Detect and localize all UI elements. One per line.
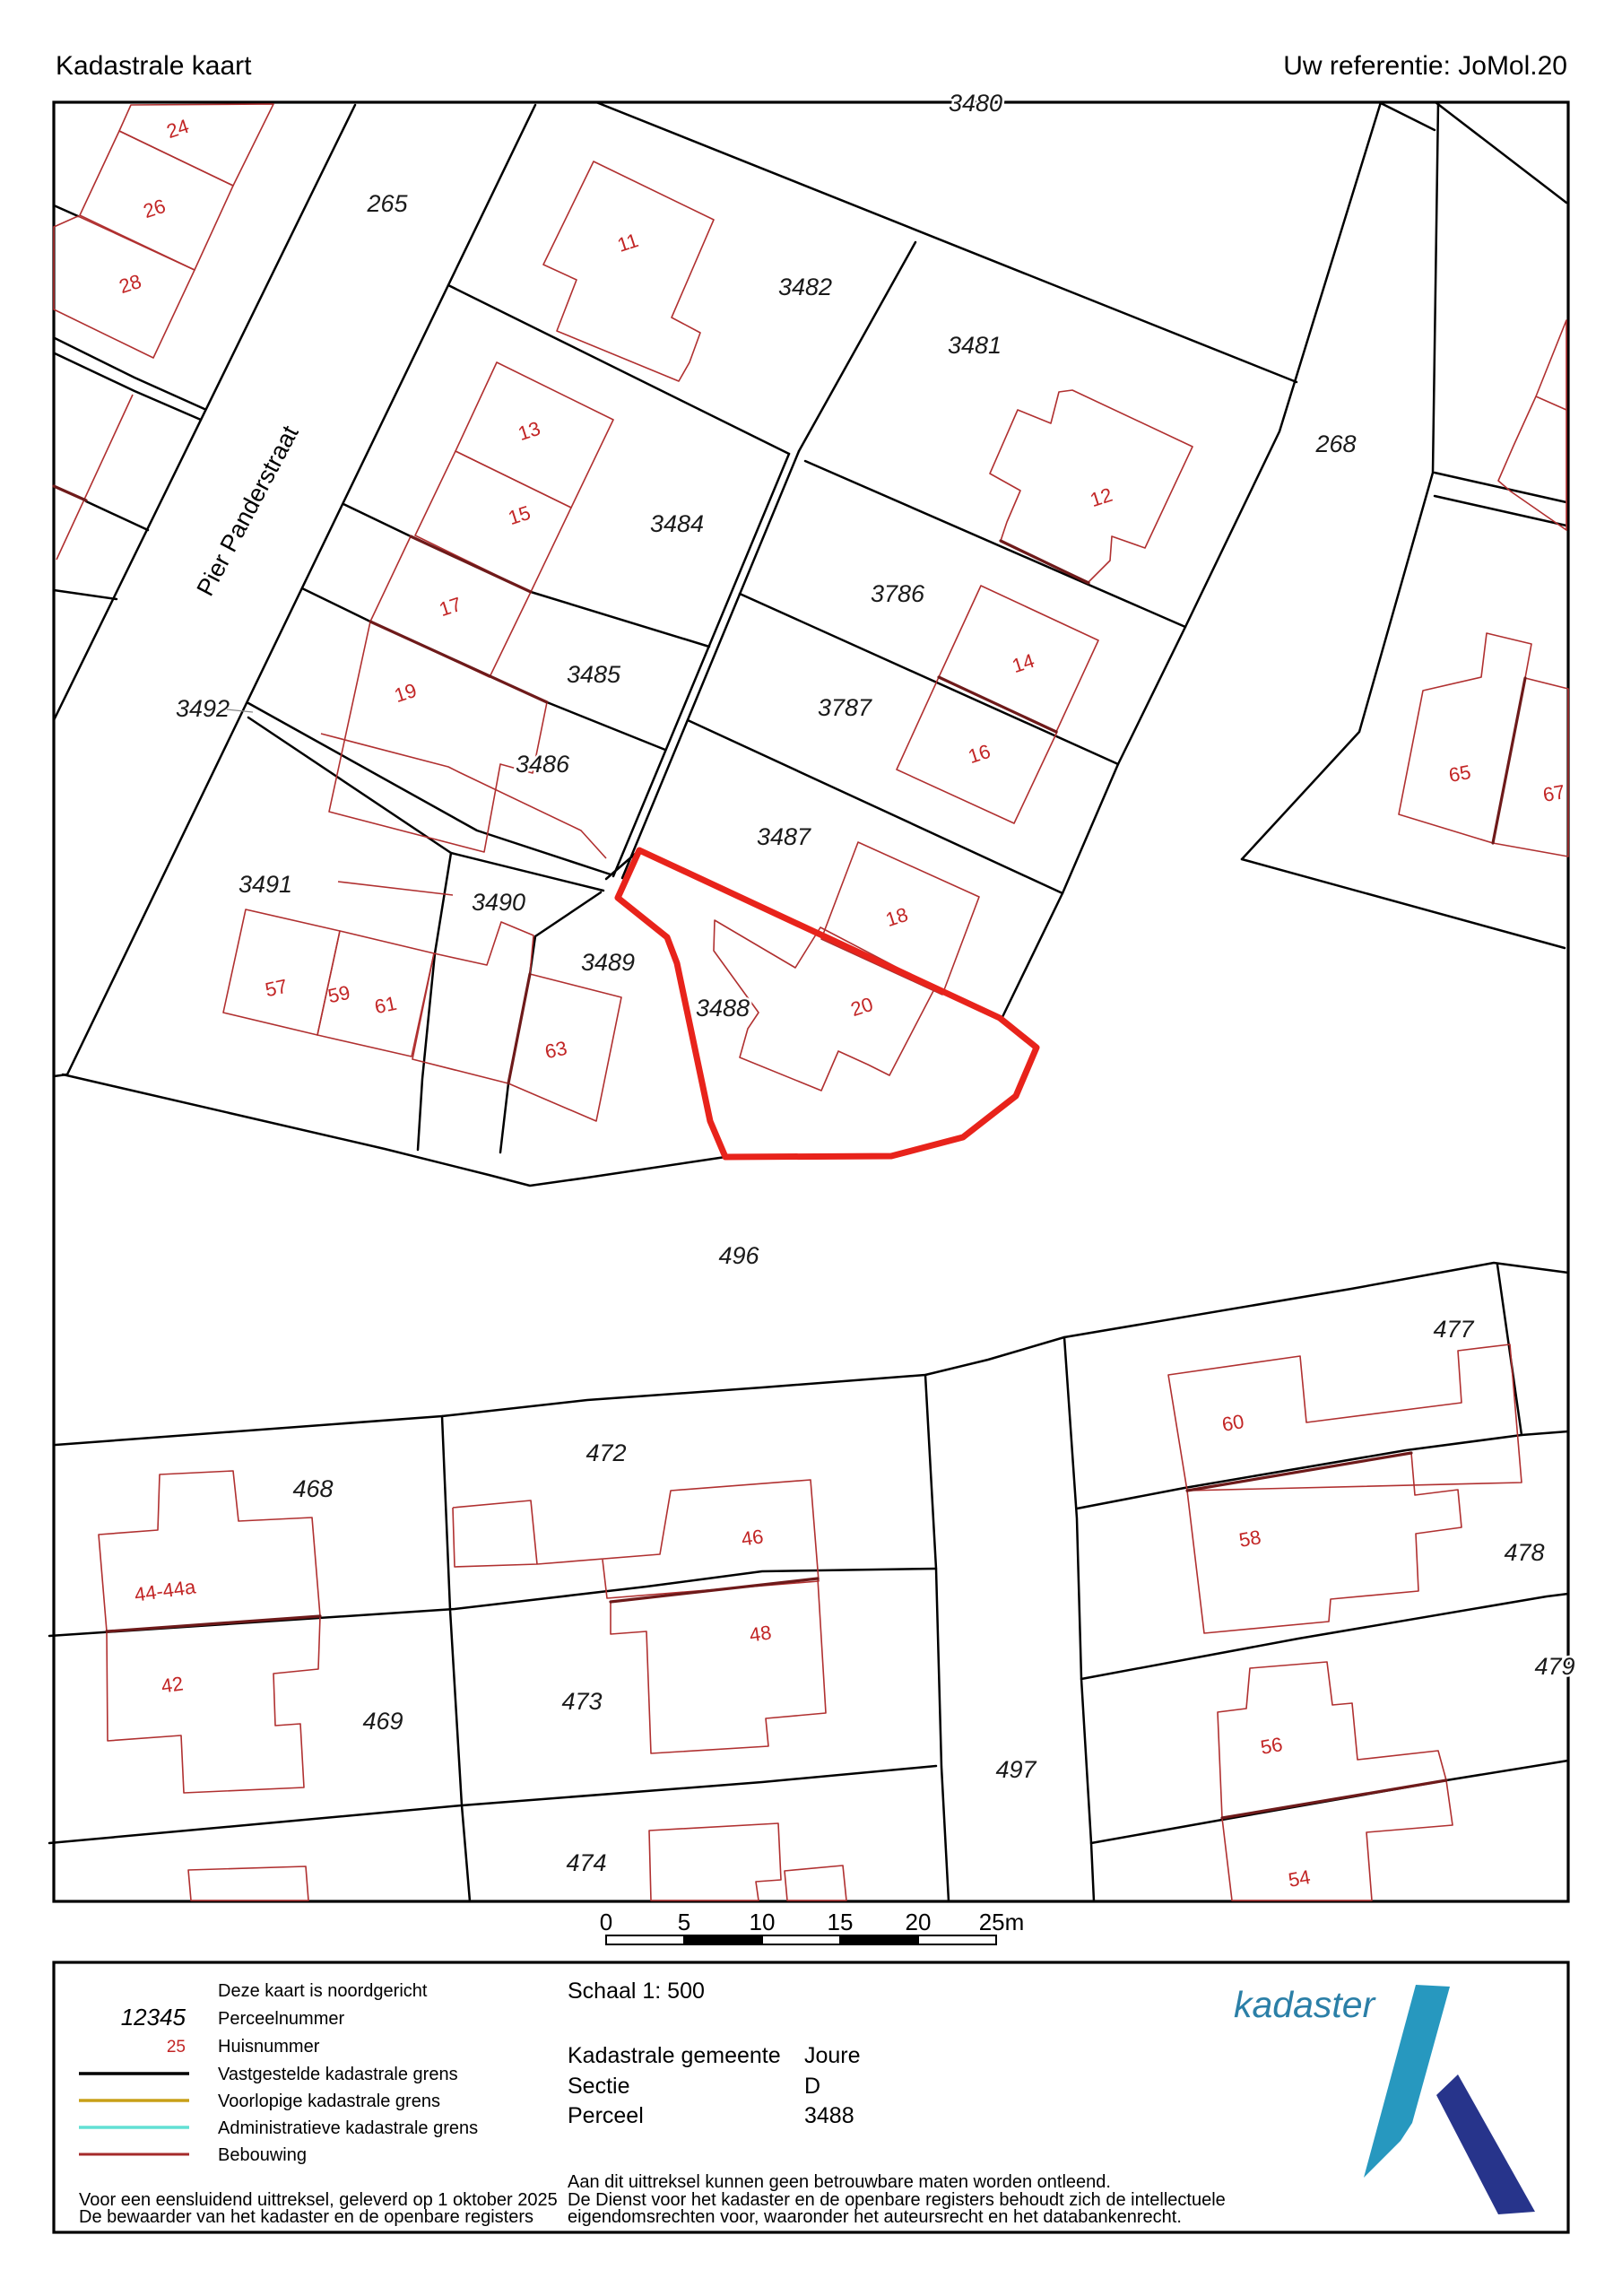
svg-text:Bebouwing: Bebouwing [218,2145,307,2165]
svg-text:472: 472 [585,1439,626,1466]
svg-text:474: 474 [566,1849,606,1876]
svg-text:54: 54 [1287,1865,1312,1892]
svg-text:473: 473 [561,1688,602,1715]
svg-text:3485: 3485 [567,661,621,688]
svg-text:20: 20 [906,1909,932,1935]
svg-text:3480: 3480 [949,90,1002,117]
svg-text:Perceelnummer: Perceelnummer [218,2009,345,2029]
svg-text:3489: 3489 [581,949,635,976]
svg-text:3488: 3488 [696,995,750,1022]
svg-text:kadaster: kadaster [1234,1984,1377,2025]
svg-text:10: 10 [750,1909,776,1935]
svg-text:3481: 3481 [948,332,1002,359]
svg-text:Deze kaart is noordgericht: Deze kaart is noordgericht [218,1981,428,2001]
svg-text:468: 468 [292,1475,333,1502]
svg-text:3786: 3786 [871,580,925,607]
svg-text:56: 56 [1259,1733,1284,1759]
svg-text:478: 478 [1504,1539,1544,1566]
svg-text:25m: 25m [979,1909,1025,1935]
svg-text:60: 60 [1220,1410,1245,1436]
svg-text:Sectie: Sectie [568,2074,629,2099]
svg-text:48: 48 [748,1621,773,1646]
svg-text:3492: 3492 [176,695,230,722]
svg-text:Joure: Joure [804,2043,861,2068]
svg-text:67: 67 [1541,780,1566,806]
svg-text:25: 25 [167,2038,186,2057]
svg-text:479: 479 [1534,1653,1574,1680]
svg-text:Uw referentie: JoMol.20: Uw referentie: JoMol.20 [1283,51,1567,81]
svg-text:D: D [804,2074,820,2099]
svg-text:De bewaarder van het kadaster: De bewaarder van het kadaster en de open… [79,2207,533,2227]
svg-text:15: 15 [828,1909,854,1935]
svg-text:3490: 3490 [472,889,525,916]
svg-text:Administratieve kadastrale gre: Administratieve kadastrale grens [218,2118,478,2138]
svg-text:59: 59 [326,981,352,1008]
svg-text:Kadastrale kaart: Kadastrale kaart [56,51,252,81]
svg-text:65: 65 [1447,761,1472,787]
svg-text:61: 61 [373,992,399,1019]
svg-text:Kadastrale gemeente: Kadastrale gemeente [568,2043,781,2068]
svg-text:12345: 12345 [121,2004,186,2031]
svg-text:57: 57 [264,975,290,1002]
svg-text:496: 496 [718,1242,759,1269]
svg-text:497: 497 [995,1756,1037,1783]
svg-text:265: 265 [366,190,408,217]
svg-text:3486: 3486 [516,751,570,778]
svg-text:3491: 3491 [239,871,292,898]
svg-text:3787: 3787 [818,694,872,721]
svg-text:0: 0 [600,1909,612,1935]
svg-text:3482: 3482 [778,274,832,300]
svg-text:5: 5 [678,1909,690,1935]
svg-text:Vastgestelde kadastrale grens: Vastgestelde kadastrale grens [218,2065,458,2084]
svg-text:268: 268 [1314,430,1356,457]
svg-text:469: 469 [362,1708,403,1735]
svg-text:3488: 3488 [804,2103,854,2128]
svg-text:Aan dit uittreksel kunnen geen: Aan dit uittreksel kunnen geen betrouwba… [568,2172,1111,2192]
svg-text:Voorlopige kadastrale grens: Voorlopige kadastrale grens [218,2092,440,2111]
svg-text:63: 63 [543,1037,569,1064]
svg-text:Schaal 1: 500: Schaal 1: 500 [568,1979,705,2004]
svg-text:477: 477 [1433,1316,1474,1343]
svg-text:eigendomsrechten voor, waarond: eigendomsrechten voor, waaronder het aut… [568,2207,1182,2227]
svg-text:3487: 3487 [757,823,811,850]
svg-text:42: 42 [160,1672,185,1697]
svg-text:46: 46 [740,1525,765,1550]
svg-text:58: 58 [1237,1526,1262,1552]
svg-text:3484: 3484 [650,510,704,537]
svg-text:Huisnummer: Huisnummer [218,2037,320,2057]
svg-text:Perceel: Perceel [568,2103,644,2128]
